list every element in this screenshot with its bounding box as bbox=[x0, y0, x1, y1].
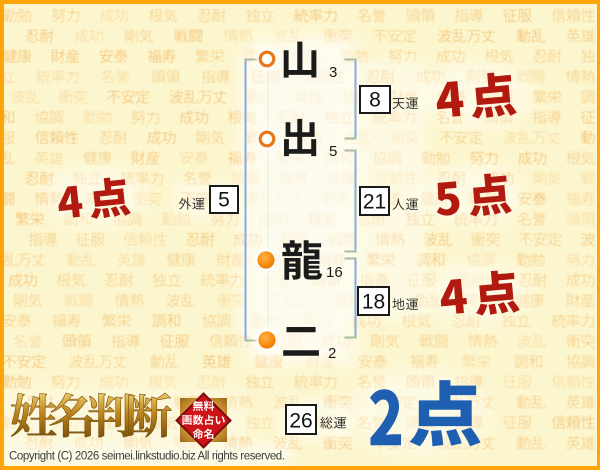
svg-text:26: 26 bbox=[289, 410, 312, 433]
svg-text:8: 8 bbox=[369, 89, 381, 112]
svg-text:21: 21 bbox=[363, 191, 386, 214]
svg-text:3: 3 bbox=[329, 64, 337, 81]
svg-text:5: 5 bbox=[329, 143, 337, 160]
svg-text:2: 2 bbox=[328, 345, 336, 362]
svg-text:Copyright (C) 2026 seimei.link: Copyright (C) 2026 seimei.linkstudio.biz… bbox=[9, 451, 285, 463]
svg-text:16: 16 bbox=[326, 264, 343, 281]
svg-text:5: 5 bbox=[218, 189, 230, 212]
svg-text:18: 18 bbox=[362, 291, 385, 314]
